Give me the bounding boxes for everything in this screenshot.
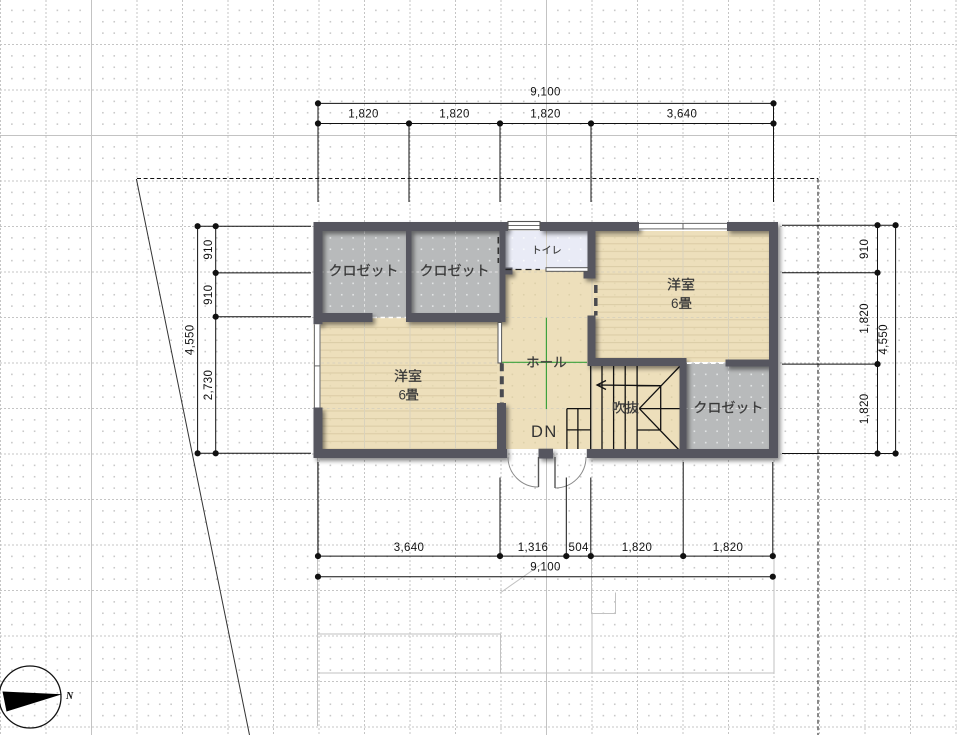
svg-text:910: 910 (203, 239, 215, 259)
svg-text:3,640: 3,640 (394, 542, 425, 554)
svg-text:6: 6 (399, 388, 407, 403)
svg-text:1,820: 1,820 (439, 109, 470, 121)
svg-text:DN: DN (531, 423, 558, 441)
svg-text:1,316: 1,316 (518, 542, 549, 554)
svg-text:1,820: 1,820 (859, 303, 871, 334)
svg-text:N: N (65, 691, 74, 702)
svg-text:1,820: 1,820 (713, 542, 744, 554)
svg-text:2,730: 2,730 (203, 370, 215, 401)
svg-text:1,820: 1,820 (348, 109, 379, 121)
svg-text:504: 504 (568, 542, 588, 554)
svg-text:1,820: 1,820 (859, 394, 871, 425)
svg-text:1,820: 1,820 (622, 542, 653, 554)
svg-text:4,550: 4,550 (185, 325, 197, 356)
svg-text:4,550: 4,550 (878, 324, 890, 355)
svg-text:9,100: 9,100 (530, 562, 561, 574)
svg-text:3,640: 3,640 (667, 109, 698, 121)
svg-text:910: 910 (859, 239, 871, 259)
svg-text:1,820: 1,820 (530, 109, 561, 121)
svg-text:910: 910 (203, 285, 215, 305)
svg-text:9,100: 9,100 (530, 87, 561, 99)
svg-text:6: 6 (671, 296, 679, 311)
